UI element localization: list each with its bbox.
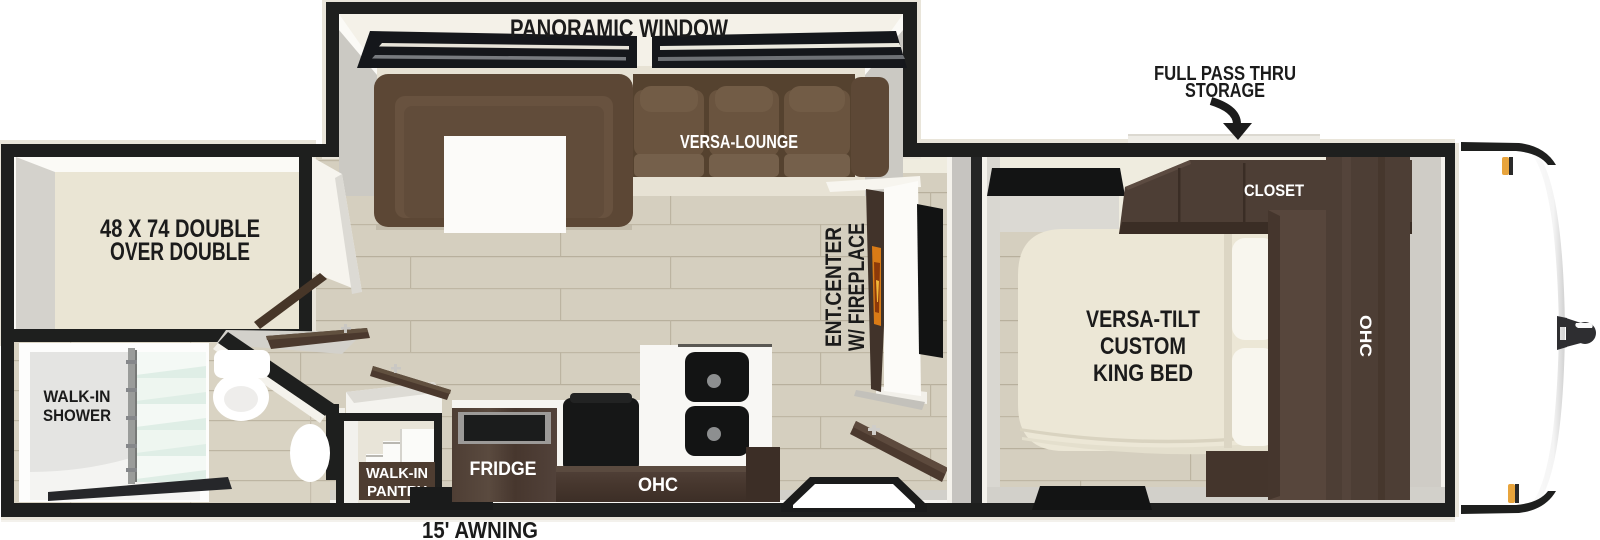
svg-text:WALK-IN: WALK-IN xyxy=(44,387,111,406)
svg-text:ENT.CENTER: ENT.CENTER xyxy=(821,227,846,347)
svg-text:VERSA-LOUNGE: VERSA-LOUNGE xyxy=(680,132,798,152)
svg-text:VERSA-TILT: VERSA-TILT xyxy=(1086,306,1200,333)
svg-text:KING BED: KING BED xyxy=(1093,360,1193,387)
svg-text:CUSTOM: CUSTOM xyxy=(1100,333,1186,360)
svg-text:OVER DOUBLE: OVER DOUBLE xyxy=(110,238,250,266)
svg-text:PANORAMIC WINDOW: PANORAMIC WINDOW xyxy=(510,15,728,43)
svg-text:FRIDGE: FRIDGE xyxy=(470,459,537,480)
svg-text:W/ FIREPLACE: W/ FIREPLACE xyxy=(844,223,869,351)
svg-text:OHC: OHC xyxy=(638,475,678,496)
svg-text:CLOSET: CLOSET xyxy=(1244,181,1305,200)
svg-text:WALK-IN: WALK-IN xyxy=(366,465,428,482)
svg-text:15' AWNING: 15' AWNING xyxy=(422,517,538,540)
svg-text:OHC: OHC xyxy=(1356,315,1375,357)
svg-text:SHOWER: SHOWER xyxy=(43,406,111,425)
svg-text:STORAGE: STORAGE xyxy=(1185,80,1265,102)
